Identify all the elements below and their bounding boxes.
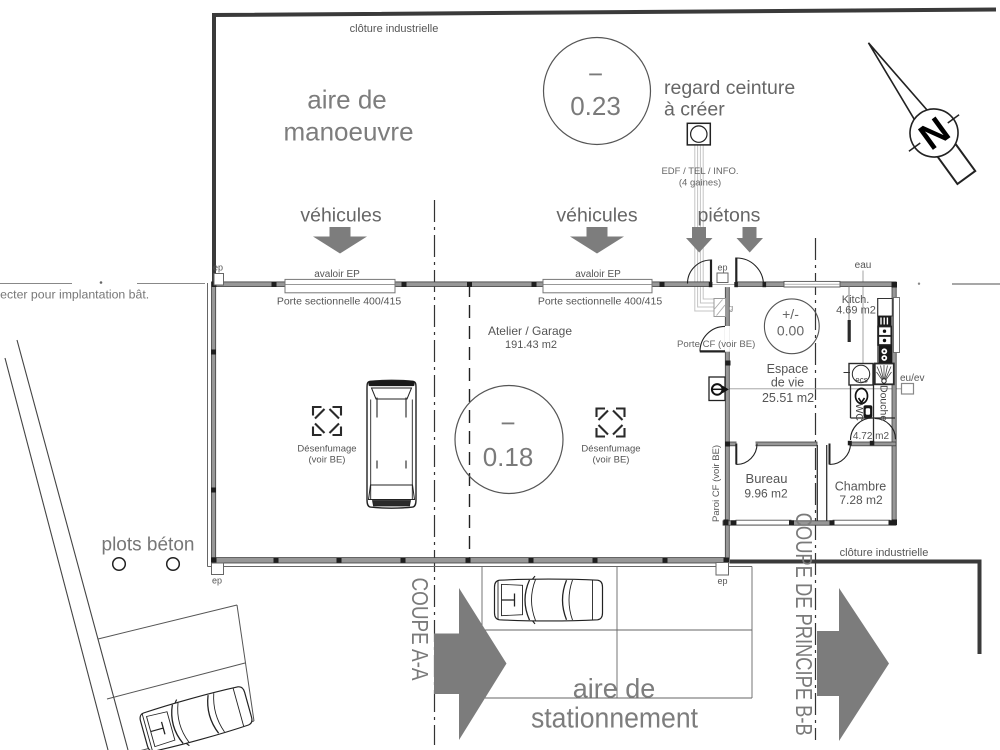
svg-text:25.51 m2: 25.51 m2 bbox=[762, 391, 814, 405]
svg-text:7.28 m2: 7.28 m2 bbox=[839, 493, 883, 507]
svg-text:191.43 m2: 191.43 m2 bbox=[505, 339, 557, 351]
svg-text:ep: ep bbox=[212, 576, 222, 586]
svg-text:regard ceinture: regard ceinture bbox=[664, 77, 795, 99]
svg-text:(voir BE): (voir BE) bbox=[309, 455, 346, 466]
svg-text:Atelier / Garage: Atelier / Garage bbox=[488, 324, 572, 338]
svg-text:Porte sectionnelle 400/415: Porte sectionnelle 400/415 bbox=[277, 296, 401, 308]
svg-text:+/-: +/- bbox=[782, 306, 799, 322]
svg-text:avaloir EP: avaloir EP bbox=[575, 269, 621, 280]
svg-text:Bureau: Bureau bbox=[746, 471, 788, 486]
svg-text:véhicules: véhicules bbox=[556, 205, 638, 227]
svg-text:ep: ep bbox=[213, 263, 223, 273]
svg-text:ep: ep bbox=[717, 576, 727, 586]
svg-text:COUPE DE PRINCIPE B-B: COUPE DE PRINCIPE B-B bbox=[791, 513, 817, 736]
svg-text:avaloir EP: avaloir EP bbox=[314, 269, 360, 280]
svg-text:de vie: de vie bbox=[771, 376, 804, 390]
svg-text:EDF / TEL / INFO.: EDF / TEL / INFO. bbox=[661, 166, 738, 177]
svg-text:0.23: 0.23 bbox=[570, 91, 621, 121]
svg-text:Désenfumage: Désenfumage bbox=[297, 444, 356, 455]
svg-text:stationnement: stationnement bbox=[531, 703, 698, 735]
svg-text:Porte sectionnelle 400/415: Porte sectionnelle 400/415 bbox=[538, 296, 662, 308]
svg-text:4.69 m2: 4.69 m2 bbox=[836, 305, 876, 317]
svg-text:clôture industrielle: clôture industrielle bbox=[350, 23, 439, 35]
svg-text:WC: WC bbox=[853, 404, 865, 422]
svg-text:0.00: 0.00 bbox=[777, 323, 804, 339]
svg-text:−: − bbox=[500, 408, 515, 438]
svg-text:piétons: piétons bbox=[698, 205, 761, 227]
svg-text:ecs: ecs bbox=[855, 376, 867, 385]
svg-text:g: g bbox=[729, 303, 734, 313]
svg-text:eau: eau bbox=[855, 260, 872, 271]
svg-text:(voir BE): (voir BE) bbox=[593, 455, 630, 466]
svg-text:à créer: à créer bbox=[664, 99, 725, 121]
svg-text:plots béton: plots béton bbox=[102, 535, 195, 556]
svg-text:clôture industrielle: clôture industrielle bbox=[840, 547, 929, 559]
svg-text:COUPE A-A: COUPE A-A bbox=[407, 578, 433, 681]
svg-text:aire de: aire de bbox=[307, 85, 387, 115]
svg-text:véhicules: véhicules bbox=[300, 205, 382, 227]
svg-text:Désenfumage: Désenfumage bbox=[581, 444, 640, 455]
svg-text:ep: ep bbox=[717, 263, 727, 273]
svg-text:Douche: Douche bbox=[878, 385, 890, 421]
svg-text:9.96 m2: 9.96 m2 bbox=[744, 487, 788, 501]
svg-text:Chambre: Chambre bbox=[835, 480, 886, 494]
svg-text:eu/ev: eu/ev bbox=[900, 373, 924, 384]
svg-text:Porte CF (voir BE): Porte CF (voir BE) bbox=[677, 339, 755, 350]
svg-text:4.72 m2: 4.72 m2 bbox=[853, 431, 890, 442]
svg-text:Paroi CF (voir BE): Paroi CF (voir BE) bbox=[711, 445, 722, 522]
svg-text:−: − bbox=[588, 59, 603, 89]
svg-text:à respecter pour implantation: à respecter pour implantation bât. bbox=[0, 288, 149, 302]
svg-text:aire de: aire de bbox=[573, 674, 656, 704]
svg-text:(4 gaines): (4 gaines) bbox=[679, 178, 721, 189]
svg-text:manoeuvre: manoeuvre bbox=[283, 117, 413, 147]
svg-text:Espace: Espace bbox=[767, 362, 809, 376]
svg-text:0.18: 0.18 bbox=[483, 442, 534, 472]
